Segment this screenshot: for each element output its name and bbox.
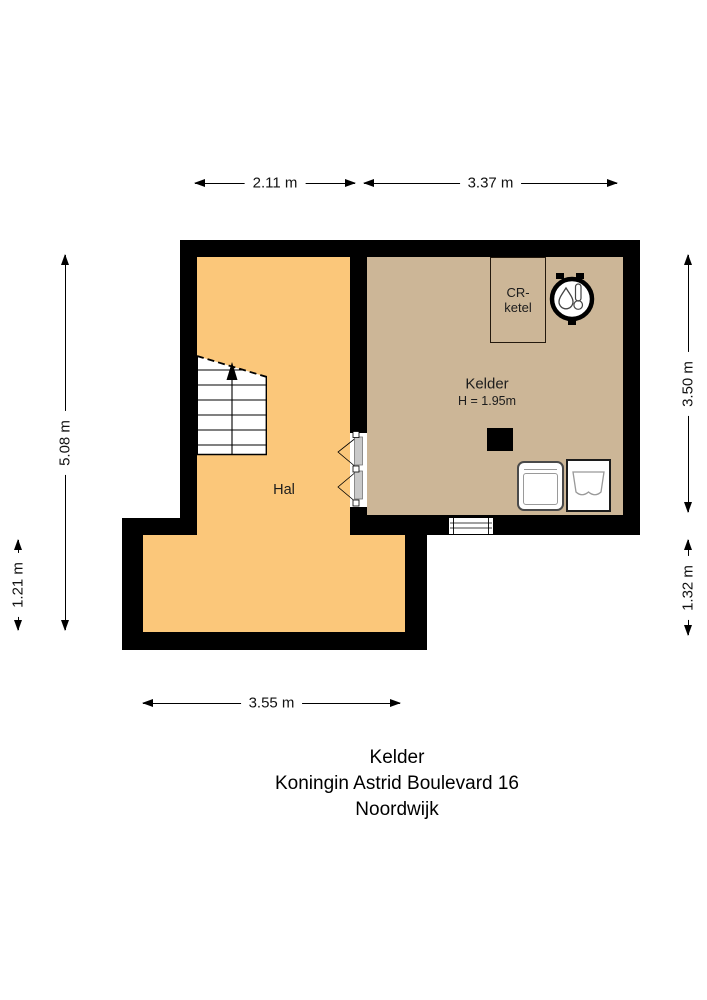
chimney-duct [487,428,513,451]
title-address: Koningin Astrid Boulevard 16 [275,771,519,797]
dimension-bottom: 3.55 m [143,703,400,704]
dimension-label: 3.55 m [241,695,303,712]
washing-machine-lid-seam [524,469,557,470]
double-door [333,425,369,515]
window [448,517,494,535]
window-glazing [449,518,493,534]
dimension-label: 5.08 m [57,411,74,475]
arrowhead-down-icon [61,620,69,631]
dimension-label: 1.32 m [680,556,697,620]
title-city: Noordwijk [275,797,519,823]
dimension-left-lower: 1.21 m [18,540,19,630]
title-floor: Kelder [275,745,519,771]
dimension-label: 3.37 m [460,175,522,192]
title-block: Kelder Koningin Astrid Boulevard 16 Noor… [275,745,519,823]
arrowhead-left-icon [142,699,153,707]
arrowhead-right-icon [607,179,618,187]
dimension-right-main: 3.50 m [688,255,689,512]
dimension-label: 2.11 m [245,175,306,192]
kelder-height-label: H = 1.95m [458,394,516,408]
cr-ketel-label-line1: CR- [506,285,529,300]
arrowhead-up-icon [684,254,692,265]
floorplan-canvas: 2.11 m 3.37 m 5.08 m 1.21 m 3.50 m 1.32 … [0,0,707,1000]
arrowhead-down-icon [684,625,692,636]
sink-basin [568,461,609,510]
arrowhead-right-icon [345,179,356,187]
arrowhead-down-icon [14,620,22,631]
sink-icon [566,459,611,512]
washing-machine-drum [523,473,558,505]
dimension-label: 3.50 m [680,352,697,416]
washing-machine-icon [517,461,564,511]
room-hal-lower [143,535,405,632]
cr-ketel-label-line2: ketel [504,300,531,315]
arrowhead-right-icon [390,699,401,707]
cr-ketel-box: CR- ketel [490,257,546,343]
boiler-icon [546,271,598,327]
dimension-right-lower: 1.32 m [688,540,689,635]
dimension-top-right: 3.37 m [364,183,617,184]
arrowhead-left-icon [194,179,205,187]
hal-label: Hal [273,482,295,498]
kelder-label: Kelder [465,376,508,393]
arrowhead-up-icon [61,254,69,265]
stairs [197,350,267,456]
arrowhead-down-icon [684,502,692,513]
arrowhead-left-icon [363,179,374,187]
dimension-label: 1.21 m [10,553,27,617]
dimension-left-main: 5.08 m [65,255,66,630]
arrowhead-up-icon [14,539,22,550]
arrowhead-up-icon [684,539,692,550]
dimension-top-left: 2.11 m [195,183,355,184]
